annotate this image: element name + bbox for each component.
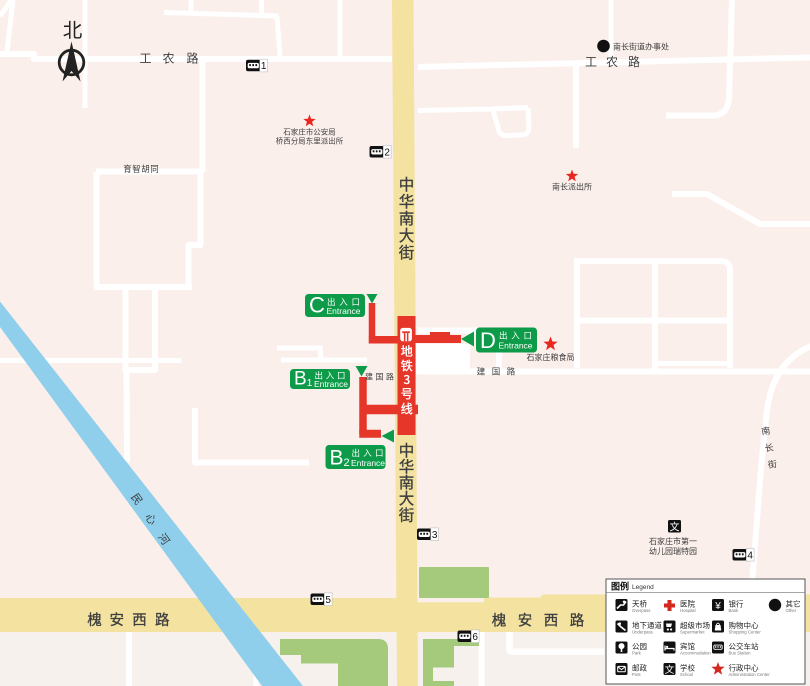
svg-text:Legend: Legend	[632, 584, 654, 591]
svg-text:Entrance: Entrance	[499, 341, 533, 351]
svg-text:中华南大街: 中华南大街	[399, 439, 415, 526]
svg-text:6: 6	[472, 632, 478, 643]
svg-text:Underpass: Underpass	[632, 630, 653, 635]
svg-text:南长派出所: 南长派出所	[552, 182, 592, 193]
svg-text:图例: 图例	[611, 580, 629, 593]
svg-text:Shopping Center: Shopping Center	[729, 630, 762, 635]
svg-text:北: 北	[63, 14, 83, 43]
svg-text:文: 文	[665, 662, 675, 676]
svg-text:4: 4	[747, 550, 753, 561]
svg-text:石家庄市公安局桥西分局东里派出所: 石家庄市公安局桥西分局东里派出所	[276, 127, 344, 147]
svg-text:工农路: 工农路	[585, 53, 640, 70]
svg-text:Park: Park	[632, 651, 642, 656]
svg-text:Entrance: Entrance	[351, 458, 385, 468]
svg-text:Post: Post	[632, 672, 641, 677]
svg-text:建国路: 建国路	[477, 366, 516, 378]
svg-text:¥: ¥	[714, 601, 721, 612]
svg-text:5: 5	[325, 595, 331, 606]
svg-text:Administration Center: Administration Center	[729, 672, 771, 677]
svg-text:D: D	[480, 328, 496, 353]
svg-text:Entrance: Entrance	[314, 379, 348, 389]
svg-text:C: C	[309, 293, 325, 318]
svg-text:Accommodation: Accommodation	[680, 651, 711, 656]
svg-text:3: 3	[432, 530, 438, 541]
svg-text:工农路: 工农路	[139, 50, 198, 67]
svg-text:1: 1	[261, 61, 267, 72]
svg-text:石家庄粮食局: 石家庄粮食局	[527, 352, 575, 363]
svg-text:Overpass: Overpass	[632, 608, 650, 613]
svg-text:育智胡同: 育智胡同	[123, 163, 159, 175]
svg-text:Bank: Bank	[729, 608, 740, 613]
svg-text:Supermarket: Supermarket	[680, 630, 705, 635]
svg-text:中华南大街: 中华南大街	[399, 173, 415, 263]
svg-text:建国路: 建国路	[365, 372, 394, 383]
svg-text:南长街道办事处: 南长街道办事处	[613, 42, 669, 53]
svg-text:Bus Station: Bus Station	[729, 651, 752, 656]
svg-text:2: 2	[384, 147, 390, 158]
svg-text:Other: Other	[786, 608, 797, 613]
svg-text:Entrance: Entrance	[327, 306, 361, 316]
svg-text:School: School	[680, 672, 693, 677]
svg-text:石家庄市第一幼儿园瑞特园: 石家庄市第一幼儿园瑞特园	[649, 536, 697, 557]
svg-text:文: 文	[670, 519, 680, 534]
svg-text:Hospital: Hospital	[680, 608, 696, 613]
